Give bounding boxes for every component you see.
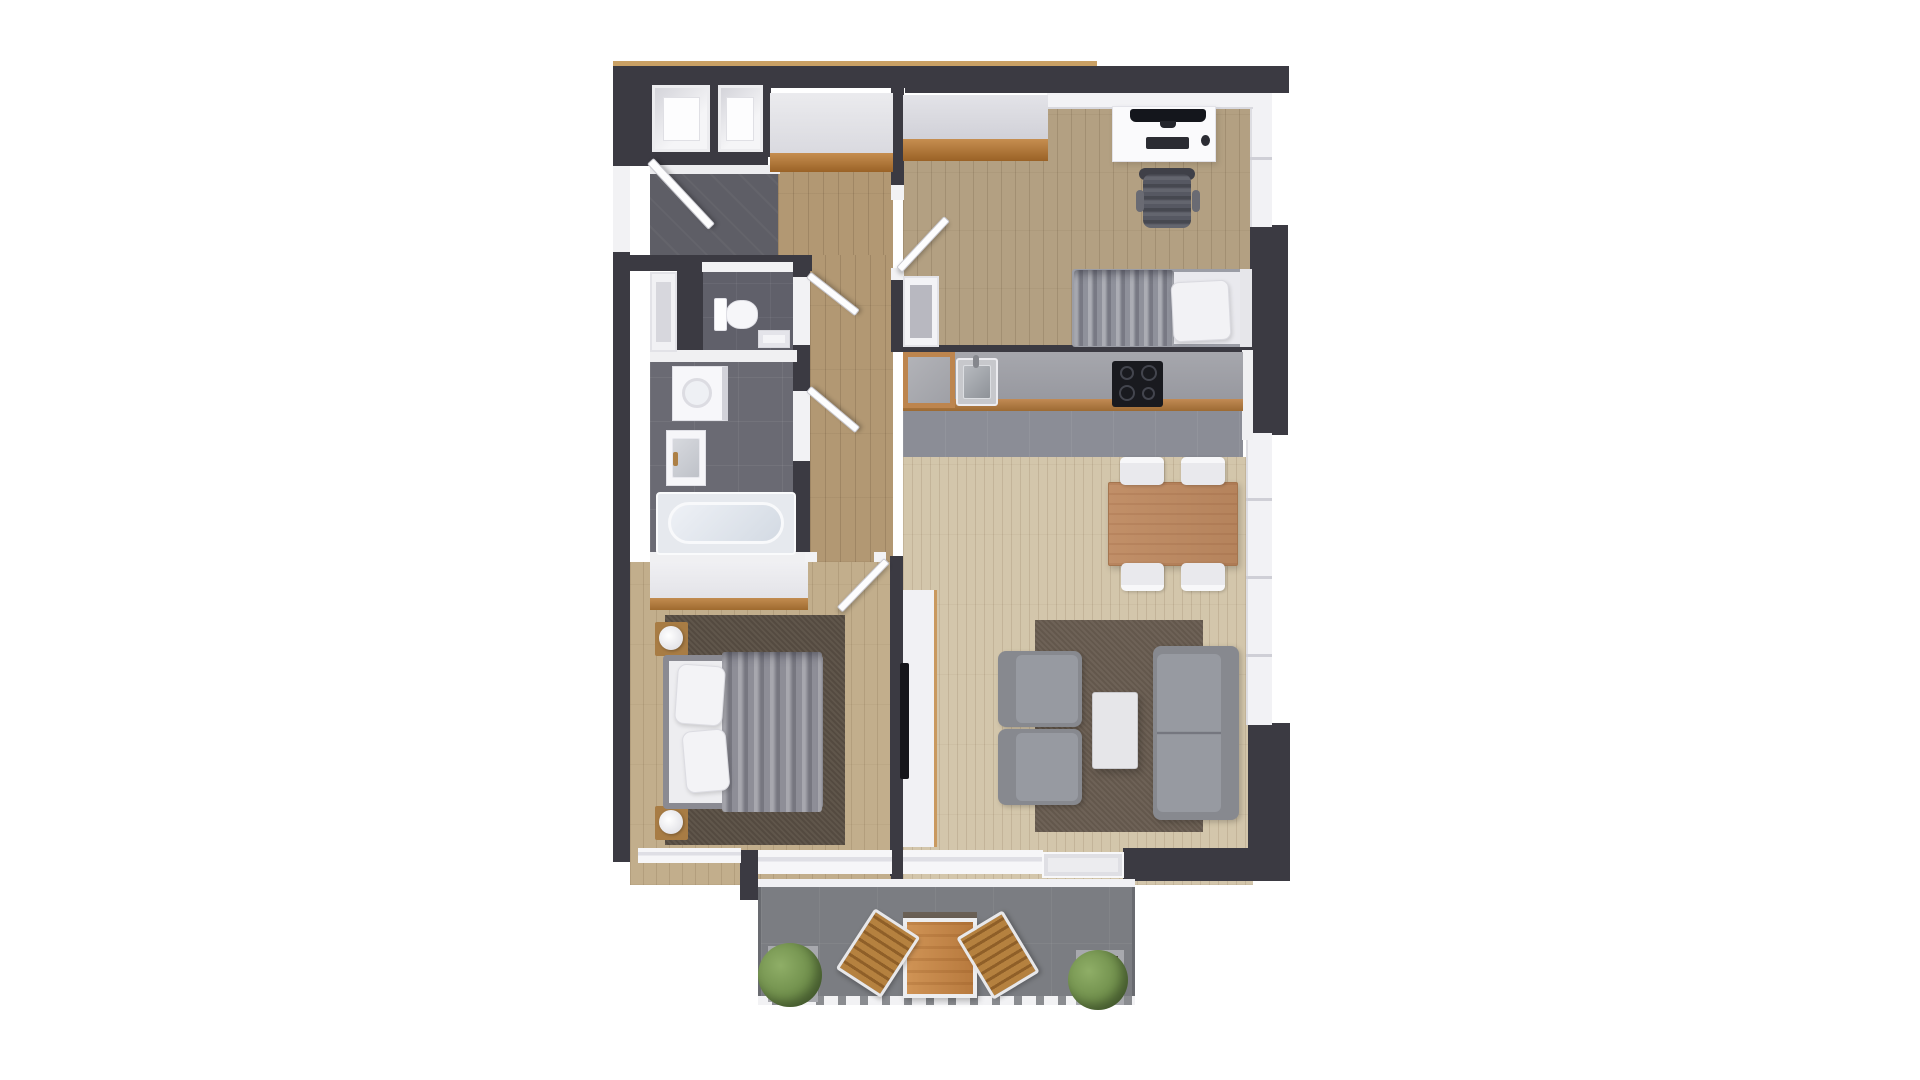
floorplan-image: [0, 0, 1920, 1080]
window-right-mid-mullion-1: [1246, 498, 1272, 501]
kitchen-floor: [903, 407, 1243, 459]
balcony-door-threshold: [1042, 852, 1124, 878]
kitchen-faucet: [973, 355, 979, 368]
toilet-bowl: [726, 300, 758, 329]
wc-basin: [758, 330, 790, 348]
window-right-top: [1250, 93, 1272, 227]
bath-vanity-faucet: [673, 452, 678, 466]
tv-screen: [900, 663, 909, 779]
window-right-mid-mullion-2: [1246, 576, 1272, 579]
dining-chair-2: [1181, 457, 1225, 485]
bathtub-basin: [668, 502, 784, 544]
balcony-glass-rail: [758, 879, 1135, 887]
wall-top-right: [905, 66, 1289, 93]
lamp-2: [659, 810, 683, 834]
bed1-wardrobe-front: [650, 598, 808, 610]
window-bottom-bed1: [758, 850, 892, 874]
office-chair-armrest-right: [1192, 190, 1200, 212]
cooktop-burner-2: [1141, 365, 1157, 381]
window-kitchen-sill: [1242, 350, 1253, 440]
dining-chair-3: [1121, 563, 1164, 591]
wall-balcony-left-pillar: [740, 850, 758, 900]
office-wardrobe-front: [903, 139, 1048, 161]
wall-bottom-right: [1123, 848, 1290, 881]
window-right-mid-mullion-3: [1246, 654, 1272, 657]
entry-floor-sill: [650, 165, 780, 174]
closet-2-inner: [726, 97, 754, 141]
office-chair-seat: [1143, 174, 1191, 228]
wall-bottom-mullion: [891, 840, 903, 880]
office-chair-armrest-left: [1136, 190, 1144, 212]
entry-niche-inner: [656, 282, 671, 342]
window-bottom-left: [638, 848, 741, 863]
lamp-1: [659, 626, 683, 650]
window-right-mid: [1246, 433, 1272, 725]
wall-niche-wc: [677, 271, 703, 352]
jamb-bed1-left: [805, 552, 817, 562]
desk-mouse: [1201, 135, 1210, 146]
balcony-table: [903, 918, 977, 998]
opening-wc-door: [793, 277, 810, 345]
wc-door-frame-top: [702, 262, 793, 272]
entry-wardrobe-front: [770, 153, 893, 172]
coffee-table: [1092, 692, 1138, 769]
bed1-wardrobe-top: [650, 562, 808, 602]
kitchen-sink-basin: [963, 365, 991, 399]
kitchen-cabinet-left: [903, 352, 955, 408]
entry-door-outer-jamb: [613, 166, 630, 252]
cooktop-burner-1: [1120, 366, 1134, 380]
desk-keyboard: [1146, 137, 1189, 149]
window-right-top-mullion: [1250, 157, 1272, 160]
office-bed-blanket: [1074, 270, 1174, 346]
washing-machine-lid: [682, 378, 712, 408]
wall-right-mid: [1250, 225, 1288, 435]
sofa-seats: [1157, 654, 1221, 812]
desk-monitor-stand: [1160, 121, 1176, 128]
plant-right: [1068, 950, 1128, 1010]
window-bottom-living: [903, 850, 1043, 874]
closet-1-inner: [663, 97, 700, 141]
office-wardrobe-top: [903, 95, 1048, 141]
cooktop-burner-3: [1119, 385, 1135, 401]
hall-floor-upper: [778, 166, 893, 258]
cooktop-burner-4: [1142, 387, 1155, 400]
dining-chair-4: [1181, 563, 1225, 591]
hall-floor-lower: [810, 255, 893, 562]
opening-bath-door: [793, 391, 810, 461]
armchair-2-seat: [1016, 733, 1078, 801]
jamb-office-top: [891, 185, 904, 200]
office-bed-pillow: [1170, 280, 1231, 343]
office-shelf-inner: [910, 285, 932, 338]
dining-table: [1108, 482, 1238, 566]
bed1-blanket: [722, 652, 822, 812]
office-bed-headboard: [1240, 269, 1252, 347]
dining-chair-1: [1120, 457, 1164, 485]
armchair-1-seat: [1016, 655, 1078, 723]
entry-wardrobe-top: [770, 93, 893, 155]
bed1-pillow-2: [681, 728, 730, 794]
bed1-pillow-1: [674, 663, 726, 726]
plant-left: [758, 943, 822, 1007]
